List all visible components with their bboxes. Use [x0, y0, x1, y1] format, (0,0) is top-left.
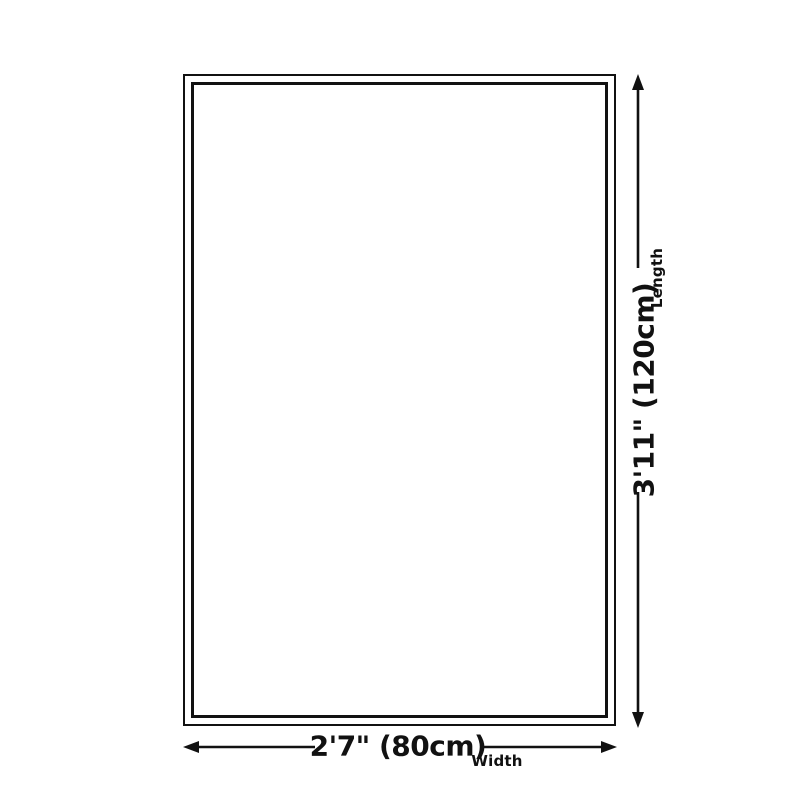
width-label: Width [471, 752, 522, 770]
rug-outline-inner [191, 82, 608, 718]
width-value: 2'7" (80cm) [310, 730, 487, 763]
length-label: Length [648, 248, 666, 308]
rug-outline-outer [183, 74, 616, 726]
rug-size-diagram: 3'11" (120cm) Length 2'7" (80cm) Width [0, 0, 800, 800]
length-value: 3'11" (120cm) [628, 283, 661, 498]
